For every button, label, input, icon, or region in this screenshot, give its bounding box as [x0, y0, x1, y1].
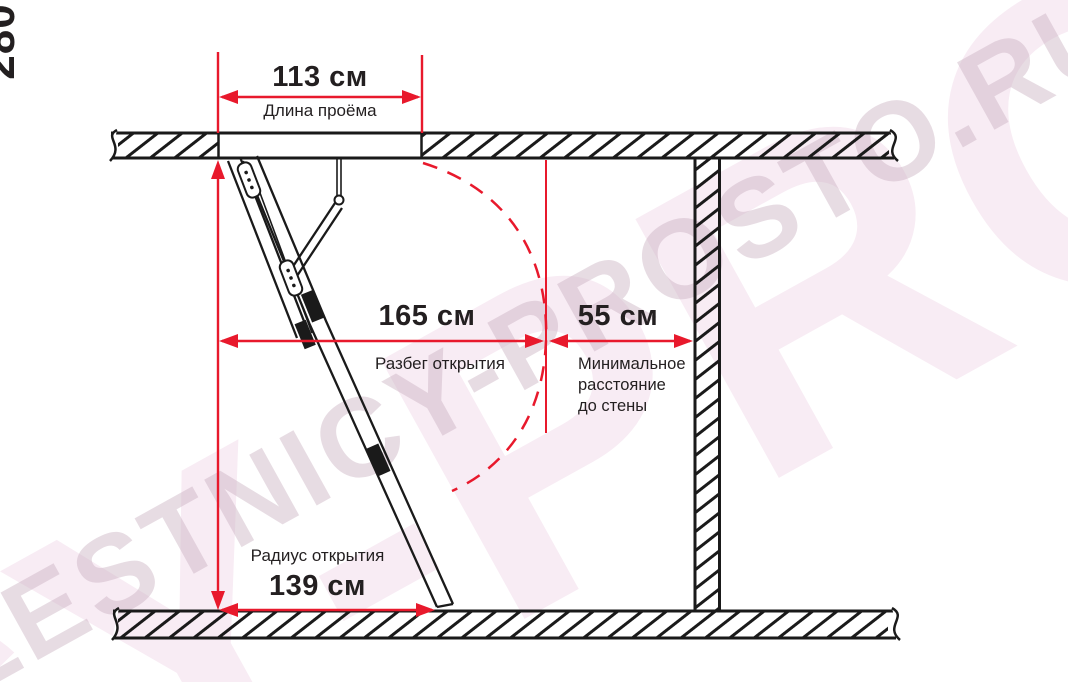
dim-label-opening-length: Длина проёма [218, 101, 422, 122]
ladder-rail-front [243, 161, 437, 607]
dim-value-ceiling-height-text: 280 СМ [0, 0, 25, 80]
dim-label-opening-run: Разбег открытия [340, 354, 540, 375]
wall-clearance-label-line3: до стены [578, 396, 738, 417]
dim-value-opening-length: 113 см [218, 62, 422, 92]
dim-label-wall-clearance: Минимальное расстояние до стены [578, 354, 738, 417]
floor-break-edge-right [892, 608, 900, 640]
dim-label-opening-radius: Радиус открытия [230, 546, 405, 567]
hinge-plate-lower [278, 259, 304, 298]
diagram-canvas: LESTNICY-PROSTO.RU LESTNICY-PROSTO.RU [0, 0, 1068, 682]
ladder-rail-back [257, 156, 453, 604]
installation-drawing [0, 0, 1068, 682]
ceiling-break-edge-left [110, 130, 117, 161]
folding-ladder [228, 156, 453, 607]
ceiling-section [110, 130, 898, 161]
wall-clearance-label-line1: Минимальное [578, 354, 738, 375]
mechanism-pivot [335, 196, 344, 205]
wall-clearance-label-line2: расстояние [578, 375, 738, 396]
dim-value-opening-radius: 139 см [230, 571, 405, 601]
floor-break-edge-left [112, 608, 119, 640]
ladder-clamp-3 [366, 443, 391, 476]
ceiling-break-edge-right [890, 130, 898, 161]
dim-value-opening-run: 165 см [320, 301, 534, 331]
dim-value-wall-clearance: 55 см [550, 301, 686, 331]
ladder-clamp-2 [295, 320, 316, 350]
door-panel-edge [228, 161, 297, 338]
